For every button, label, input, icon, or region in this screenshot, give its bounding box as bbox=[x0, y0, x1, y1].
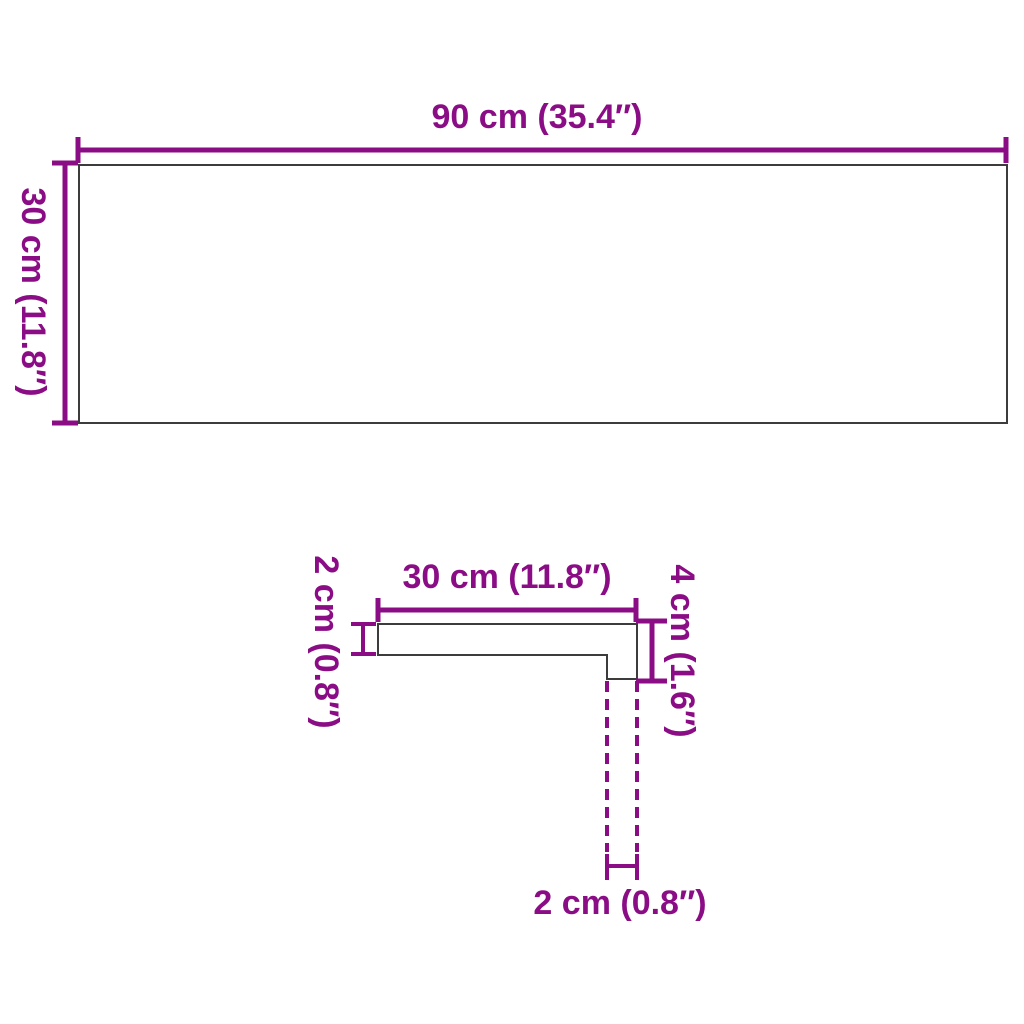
profile-thickness-dimension bbox=[351, 624, 376, 654]
projection-lines bbox=[607, 681, 637, 852]
board-height-dimension bbox=[52, 163, 78, 423]
profile-thickness-label: 2 cm (0.8″) bbox=[309, 555, 343, 728]
profile-width-label: 30 cm (11.8″) bbox=[402, 560, 611, 594]
diagram-lines bbox=[0, 0, 1024, 1024]
board-width-dimension bbox=[78, 137, 1006, 163]
board-width-label: 90 cm (35.4″) bbox=[432, 100, 643, 134]
profile-outline bbox=[378, 624, 637, 679]
profile-nose-width-dimension bbox=[607, 854, 637, 880]
profile-nose-width-label: 2 cm (0.8″) bbox=[533, 886, 706, 920]
board-height-label: 30 cm (11.8″) bbox=[16, 187, 50, 396]
board-outline bbox=[79, 165, 1007, 423]
dimension-diagram: 90 cm (35.4″) 30 cm (11.8″) 30 cm (11.8″… bbox=[0, 0, 1024, 1024]
profile-height-label: 4 cm (1.6″) bbox=[665, 564, 699, 737]
profile-width-dimension bbox=[378, 598, 636, 622]
